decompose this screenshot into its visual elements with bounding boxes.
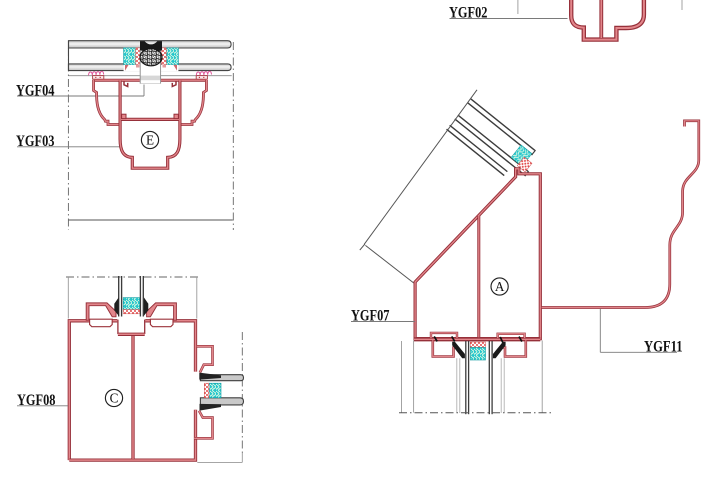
svg-text:YGF07: YGF07 bbox=[351, 308, 390, 325]
svg-text:C: C bbox=[110, 391, 119, 406]
svg-text:A: A bbox=[495, 279, 505, 294]
svg-text:YGF04: YGF04 bbox=[16, 83, 55, 100]
svg-text:YGF08: YGF08 bbox=[17, 392, 56, 409]
svg-text:YGF03: YGF03 bbox=[16, 133, 55, 150]
svg-text:YGF11: YGF11 bbox=[644, 338, 683, 355]
svg-text:YGF02: YGF02 bbox=[449, 5, 488, 22]
svg-text:E: E bbox=[146, 133, 154, 148]
